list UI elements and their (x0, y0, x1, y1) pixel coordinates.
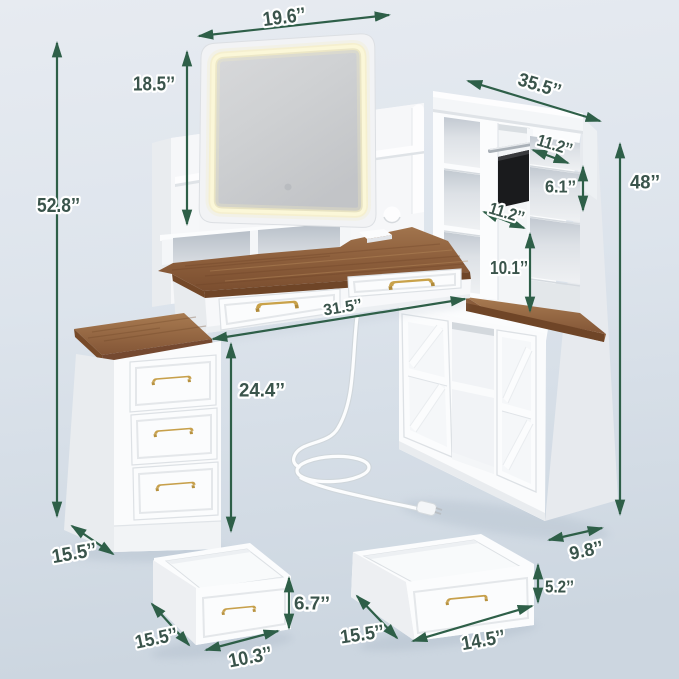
svg-text:48’’: 48’’ (630, 173, 660, 194)
svg-text:10.1’’: 10.1’’ (490, 258, 528, 278)
svg-text:6.7’’: 6.7’’ (294, 594, 330, 614)
svg-text:5.2’’: 5.2’’ (545, 577, 574, 597)
svg-text:52.8’’: 52.8’’ (37, 195, 80, 217)
svg-text:18.5’’: 18.5’’ (133, 73, 175, 96)
svg-text:6.1’’: 6.1’’ (545, 177, 576, 197)
svg-text:24.4’’: 24.4’’ (239, 380, 285, 402)
